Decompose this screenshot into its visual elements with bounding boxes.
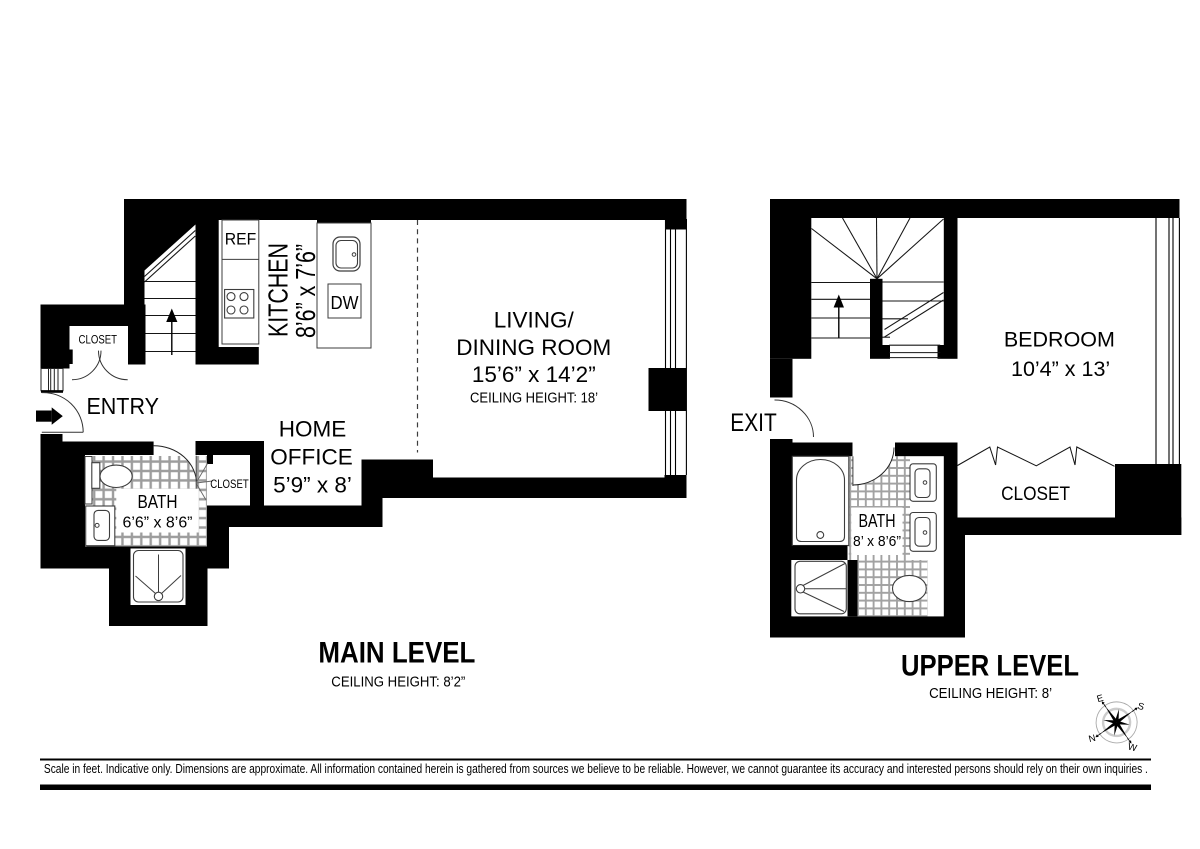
- svg-text:DINING ROOM: DINING ROOM: [456, 335, 611, 360]
- svg-text:CEILING HEIGHT: 8’: CEILING HEIGHT: 8’: [929, 685, 1052, 702]
- svg-text:DW: DW: [331, 293, 359, 313]
- svg-text:5’9” x 8’: 5’9” x 8’: [273, 473, 352, 498]
- svg-text:BATH: BATH: [859, 510, 896, 531]
- svg-text:CLOSET: CLOSET: [1001, 484, 1070, 505]
- svg-text:CEILING HEIGHT: 18’: CEILING HEIGHT: 18’: [470, 390, 598, 407]
- svg-text:ENTRY: ENTRY: [86, 393, 159, 419]
- svg-text:CLOSET: CLOSET: [210, 479, 249, 491]
- svg-text:CLOSET: CLOSET: [79, 335, 118, 347]
- svg-text:LIVING/: LIVING/: [494, 308, 575, 333]
- svg-text:10’4” x 13’: 10’4” x 13’: [1011, 357, 1110, 381]
- svg-text:BATH: BATH: [138, 491, 178, 512]
- svg-text:CEILING HEIGHT: 8’2”: CEILING HEIGHT: 8’2”: [331, 674, 465, 691]
- svg-text:HOME: HOME: [279, 417, 347, 442]
- svg-text:UPPER LEVEL: UPPER LEVEL: [901, 649, 1079, 682]
- svg-text:MAIN LEVEL: MAIN LEVEL: [318, 637, 475, 670]
- svg-text:REF: REF: [225, 230, 257, 249]
- svg-text:Scale in feet. Indicative only: Scale in feet. Indicative only. Dimensio…: [44, 761, 1148, 776]
- svg-text:OFFICE: OFFICE: [270, 445, 353, 470]
- svg-text:6’6” x 8’6”: 6’6” x 8’6”: [123, 514, 193, 531]
- svg-text:8’ x 8’6”: 8’ x 8’6”: [853, 533, 901, 550]
- svg-text:EXIT: EXIT: [730, 409, 777, 437]
- svg-text:BEDROOM: BEDROOM: [1004, 327, 1115, 351]
- svg-text:15’6” x 14’2”: 15’6” x 14’2”: [472, 362, 596, 387]
- svg-text:KITCHEN: KITCHEN: [262, 243, 293, 337]
- svg-text:8’6” x 7’6”: 8’6” x 7’6”: [290, 244, 321, 338]
